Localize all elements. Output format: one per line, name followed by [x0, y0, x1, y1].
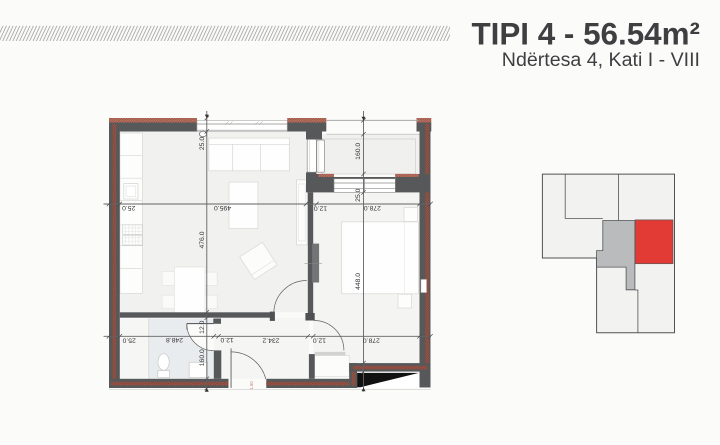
- svg-text:234.2: 234.2: [262, 336, 279, 343]
- svg-text:12.0: 12.0: [313, 336, 326, 343]
- svg-text:TIPI 4 - 56.54m²: TIPI 4 - 56.54m²: [471, 17, 700, 52]
- svg-text:12.0: 12.0: [314, 204, 327, 211]
- svg-text:160.0: 160.0: [355, 143, 362, 160]
- svg-text:25.0: 25.0: [199, 137, 206, 150]
- svg-text:278.0: 278.0: [364, 204, 381, 211]
- svg-text:12.0: 12.0: [220, 336, 233, 343]
- svg-text:25.0: 25.0: [122, 336, 135, 343]
- svg-text:248.8: 248.8: [166, 336, 183, 343]
- svg-text:160.0: 160.0: [199, 349, 206, 366]
- svg-text:476.0: 476.0: [199, 231, 206, 248]
- svg-text:1.50: 1.50: [249, 381, 254, 390]
- svg-text:495.0: 495.0: [214, 204, 231, 211]
- svg-text:25.0: 25.0: [355, 188, 362, 201]
- svg-text:25.0: 25.0: [122, 204, 135, 211]
- svg-text:12.0: 12.0: [199, 320, 206, 333]
- svg-text:Ndërtesa 4, Kati I - VIII: Ndërtesa 4, Kati I - VIII: [502, 49, 700, 71]
- svg-text:448.0: 448.0: [355, 273, 362, 290]
- svg-text:278.0: 278.0: [363, 337, 380, 344]
